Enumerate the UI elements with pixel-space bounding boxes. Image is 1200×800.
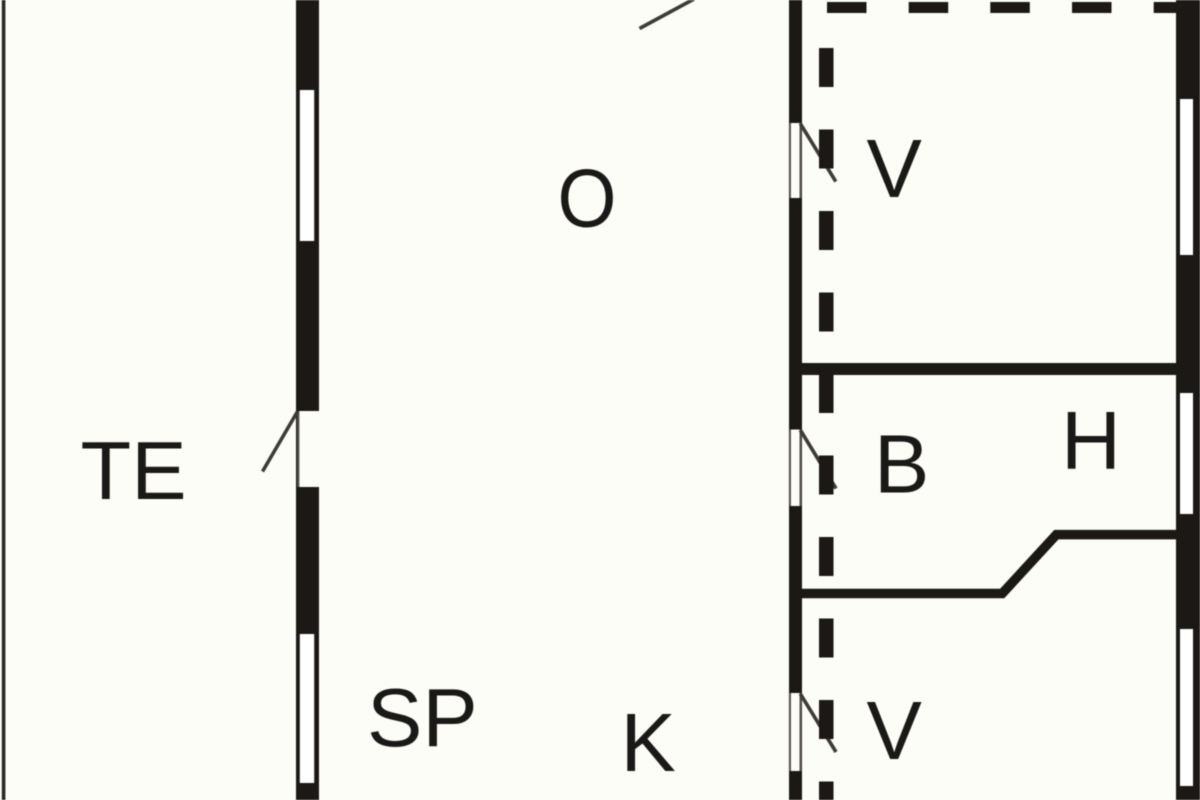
svg-text:SP: SP [367,671,478,764]
svg-text:B: B [874,418,929,511]
svg-text:K: K [621,696,676,789]
svg-text:H: H [1061,394,1121,487]
svg-text:V: V [867,122,922,215]
svg-text:TE: TE [81,424,187,517]
svg-text:O: O [558,152,617,245]
svg-text:V: V [867,684,922,777]
